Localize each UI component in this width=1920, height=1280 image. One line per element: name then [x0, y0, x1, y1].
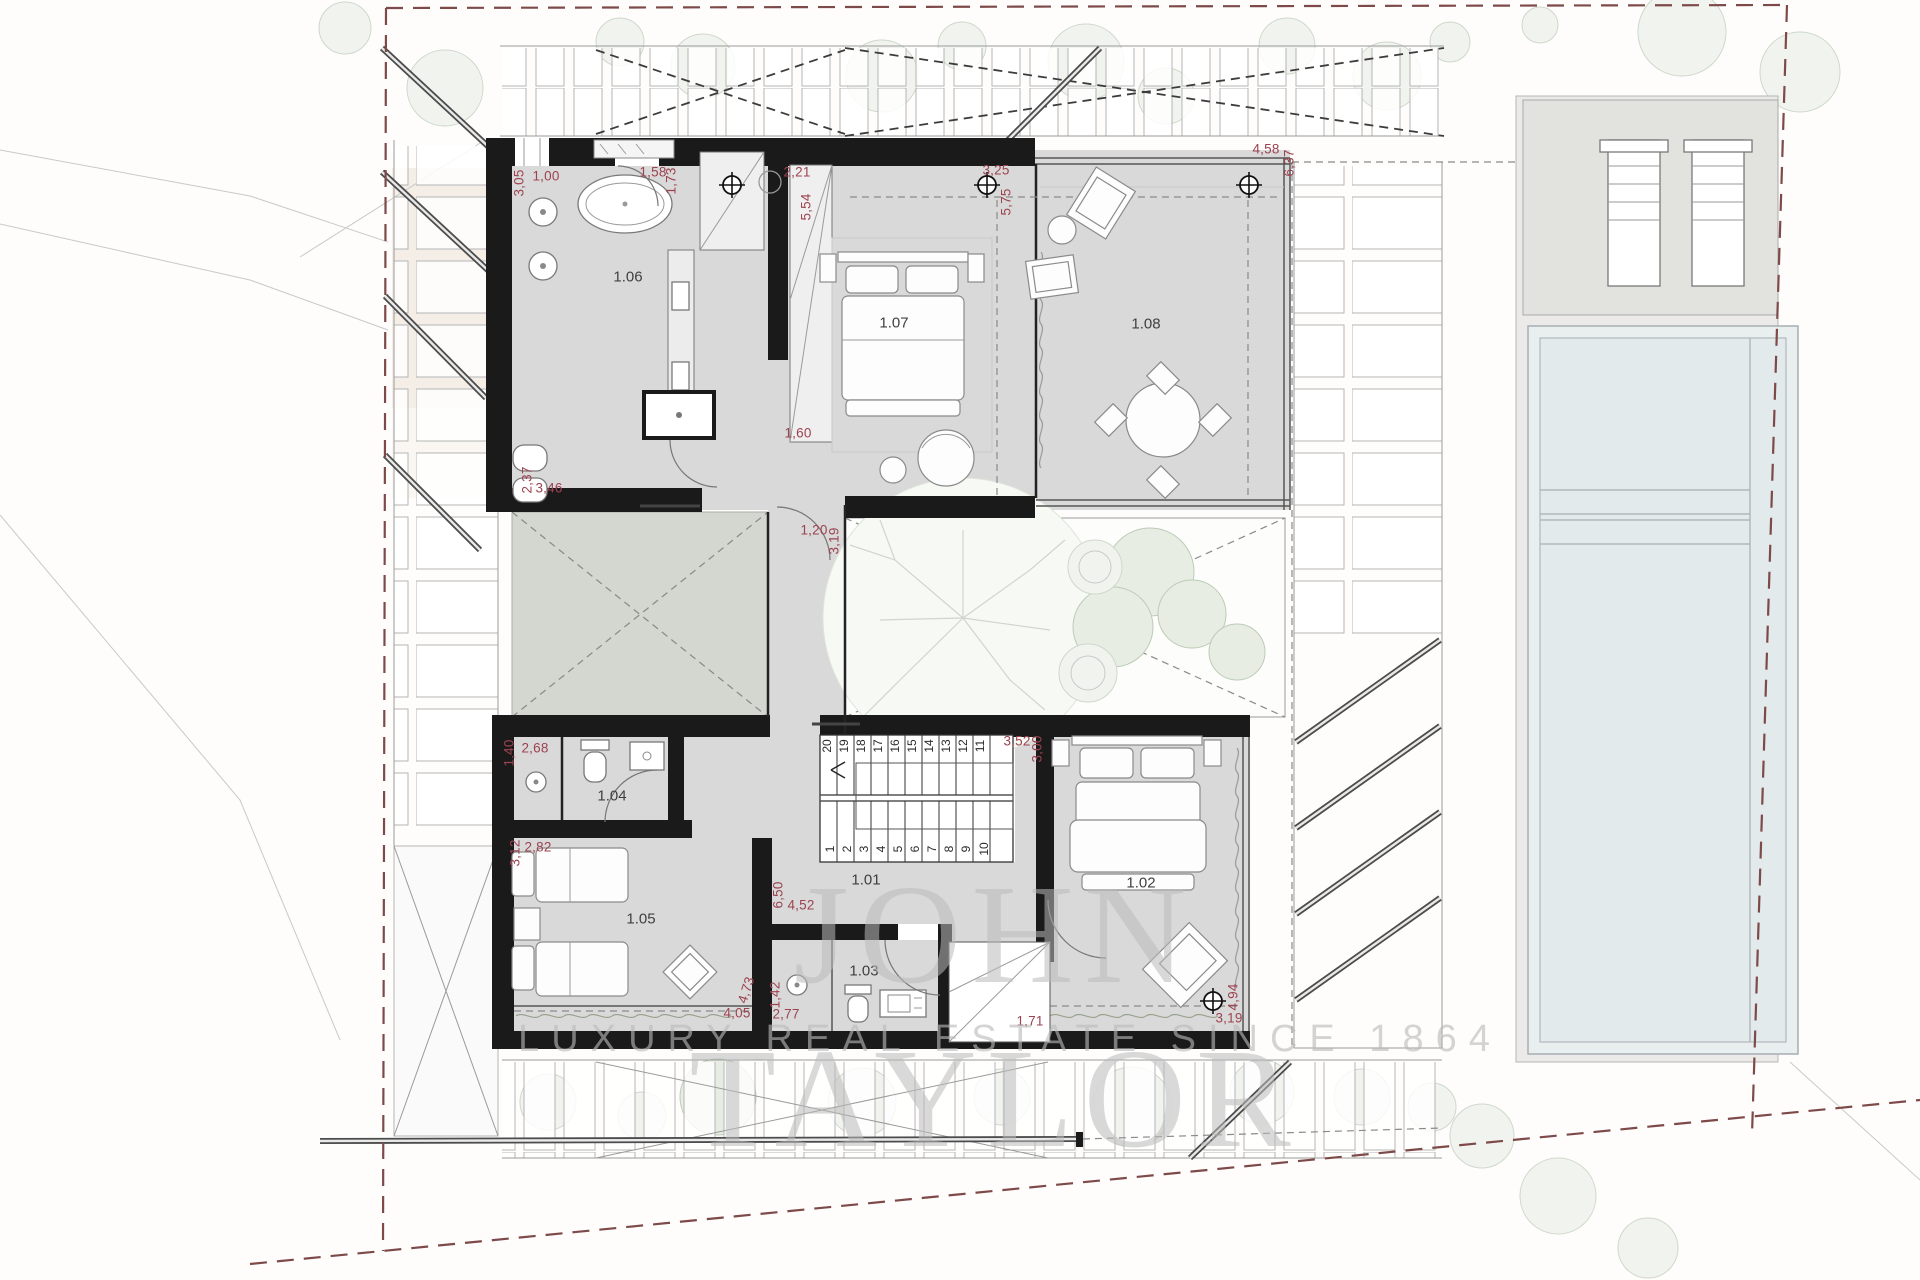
swimming-pool — [1528, 326, 1798, 1054]
bed-single — [512, 942, 628, 996]
toilet — [848, 996, 868, 1022]
sink — [630, 742, 664, 770]
sun-lounger — [1684, 140, 1752, 286]
bed-single — [512, 848, 628, 902]
pergola-bottom — [502, 1060, 1442, 1158]
bidet — [513, 478, 547, 502]
side-table — [1048, 216, 1076, 244]
toilet — [513, 445, 547, 471]
toilet — [584, 752, 606, 782]
vanity — [880, 990, 926, 1017]
floorplan-drawing — [0, 0, 1920, 1280]
floorplan-canvas: 1.011.021.031.041.051.061.071.083,051,00… — [0, 0, 1920, 1280]
wardrobe — [700, 152, 764, 250]
side-table — [514, 908, 540, 940]
wardrobe — [790, 165, 832, 442]
pergola-top — [500, 46, 1444, 136]
wardrobe — [949, 942, 1050, 1042]
sun-lounger — [1600, 140, 1668, 286]
lounge-chair — [1026, 255, 1079, 299]
pergola-left — [394, 140, 498, 1136]
staircase — [820, 735, 1013, 862]
armchair — [918, 430, 974, 486]
wardrobe — [594, 140, 674, 158]
ottoman — [880, 457, 906, 483]
